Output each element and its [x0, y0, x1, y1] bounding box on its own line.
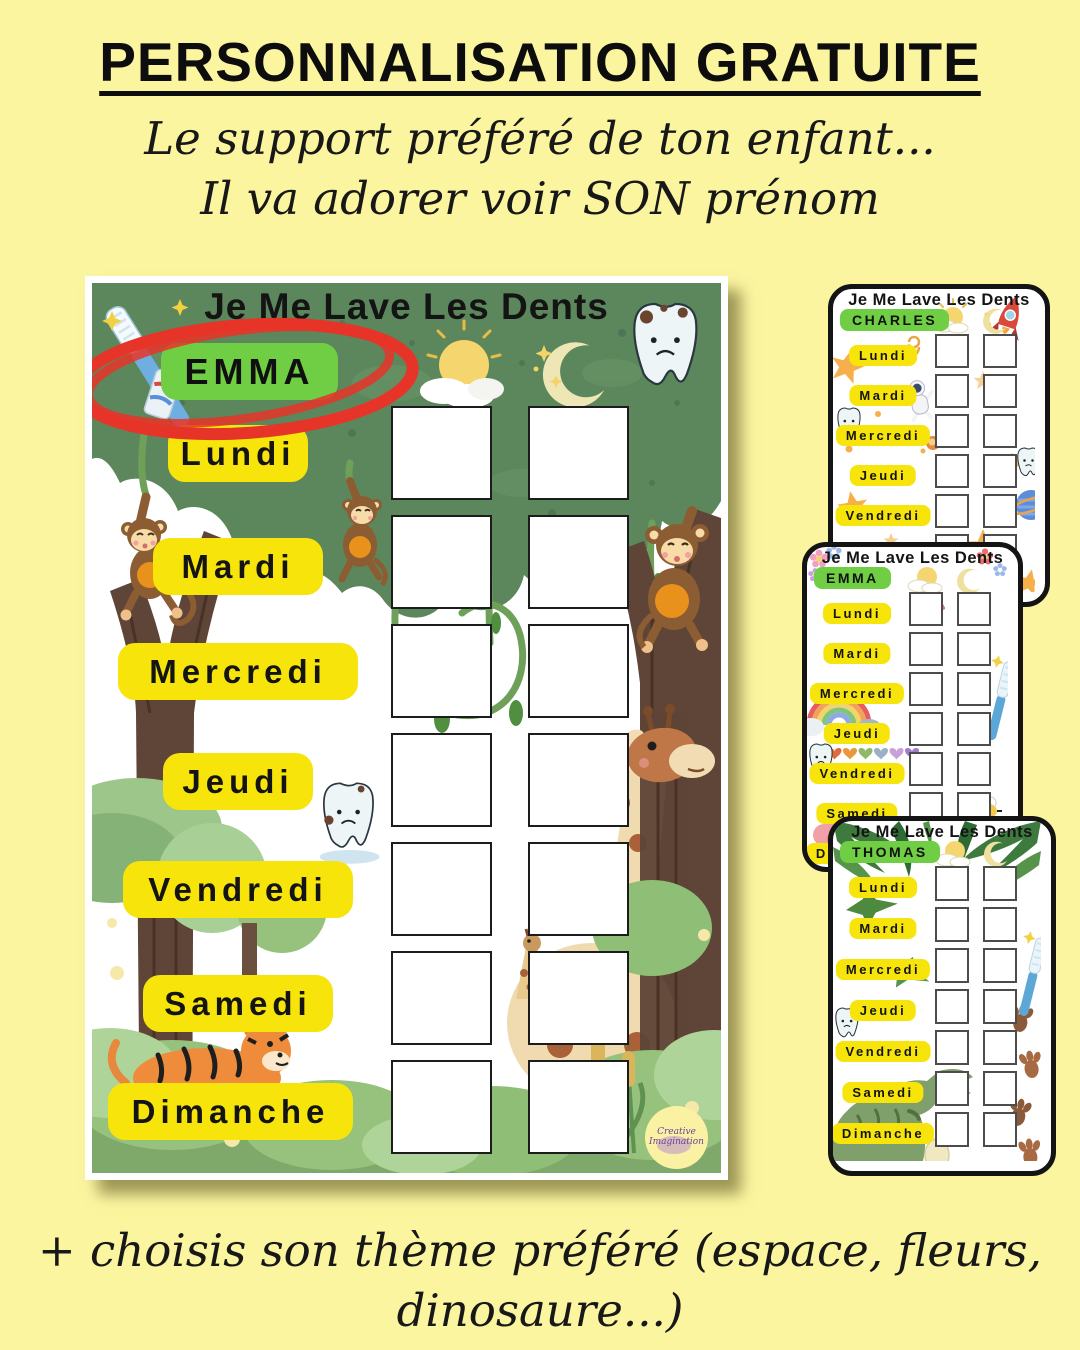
checkbox — [391, 515, 492, 609]
day-pill-vendredi: Vendredi — [836, 505, 931, 526]
day-pill-vendredi: Vendredi — [836, 1041, 931, 1062]
mini-chart-title: Je Me Lave Les Dents — [833, 823, 1051, 842]
brand-logo: Creative Imagination — [645, 1106, 708, 1169]
day-pill-dimanche: Dimanche — [108, 1083, 353, 1140]
checkbox — [957, 672, 991, 706]
checkbox — [983, 907, 1017, 942]
day-pill-dimanche: Dimanche — [832, 1123, 934, 1144]
checkbox — [983, 414, 1017, 448]
jungle-scene: Je Me Lave Les Dents EMMA Lundi Mardi Me… — [92, 283, 721, 1173]
checkbox — [935, 454, 969, 488]
checkbox — [909, 672, 943, 706]
checkbox — [391, 842, 492, 936]
checkbox — [983, 1071, 1017, 1106]
mini-chart-name-pill: THOMAS — [840, 841, 940, 863]
checkbox — [957, 752, 991, 786]
checkbox — [957, 632, 991, 666]
checkbox — [528, 406, 629, 500]
day-pill-mercredi: Mercredi — [118, 643, 358, 700]
day-pill-mardi: Mardi — [849, 385, 916, 406]
checkbox — [528, 624, 629, 718]
checkbox — [935, 989, 969, 1024]
checkbox — [935, 866, 969, 901]
checkbox — [935, 1030, 969, 1065]
checkbox — [391, 733, 492, 827]
checkbox — [935, 1112, 969, 1147]
checkbox — [983, 374, 1017, 408]
checkbox — [528, 733, 629, 827]
checkbox — [935, 1071, 969, 1106]
checkbox — [528, 1060, 629, 1154]
mini-tooth-right — [1018, 448, 1035, 476]
checkbox — [528, 951, 629, 1045]
mini-chart-name-pill: CHARLES — [840, 309, 949, 331]
checkbox — [935, 948, 969, 983]
day-pill-mercredi: Mercredi — [836, 959, 930, 980]
checkbox — [909, 712, 943, 746]
checkbox — [909, 592, 943, 626]
footer-line-1: + choisis son thème préféré (espace, fle… — [0, 1224, 1080, 1277]
day-pill-lundi: Lundi — [849, 345, 917, 366]
main-chart: Je Me Lave Les Dents EMMA Lundi Mardi Me… — [85, 276, 728, 1180]
mini-chart-title: Je Me Lave Les Dents — [807, 549, 1018, 568]
checkbox — [983, 989, 1017, 1024]
checkbox — [957, 592, 991, 626]
checkbox-grid — [391, 406, 629, 1154]
checkbox — [983, 454, 1017, 488]
checkbox — [391, 624, 492, 718]
day-pill-jeudi: Jeudi — [163, 753, 313, 810]
checkbox — [983, 866, 1017, 901]
checkbox — [391, 1060, 492, 1154]
day-pill-mercredi: Mercredi — [810, 683, 904, 704]
checkbox — [935, 414, 969, 448]
checkbox — [909, 632, 943, 666]
checkbox — [935, 494, 969, 528]
checkbox — [983, 494, 1017, 528]
day-pill-vendredi: Vendredi — [810, 763, 905, 784]
day-pill-jeudi: Jeudi — [850, 1000, 916, 1021]
checkbox — [528, 515, 629, 609]
checkbox — [957, 712, 991, 746]
checkbox — [528, 842, 629, 936]
red-highlight-circle — [92, 309, 429, 451]
poster: PERSONNALISATION GRATUITE Le support pré… — [0, 0, 1080, 1350]
checkbox — [983, 1030, 1017, 1065]
subtitle-line-1: Le support préféré de ton enfant... — [0, 112, 1080, 165]
mini-chart-title: Je Me Lave Les Dents — [833, 291, 1045, 310]
day-pill-lundi: Lundi — [823, 603, 891, 624]
day-pill-mardi: Mardi — [153, 538, 323, 595]
subtitle-line-2: Il va adorer voir SON prénom — [0, 172, 1080, 225]
checkbox — [391, 951, 492, 1045]
day-pill-jeudi: Jeudi — [824, 723, 890, 744]
footer-line-2: dinosaure...) — [0, 1284, 1080, 1337]
checkbox-grid — [935, 866, 1017, 1147]
checkbox — [983, 948, 1017, 983]
day-pill-samedi: Samedi — [143, 975, 333, 1032]
checkbox — [983, 1112, 1017, 1147]
day-pill-mercredi: Mercredi — [836, 425, 930, 446]
day-pill-mardi: Mardi — [823, 643, 890, 664]
day-pill-jeudi: Jeudi — [850, 465, 916, 486]
sad-tooth-jeudi — [320, 783, 380, 864]
day-pill-vendredi: Vendredi — [123, 861, 353, 918]
page-title: PERSONNALISATION GRATUITE — [0, 30, 1080, 94]
checkbox — [935, 334, 969, 368]
day-pill-mardi: Mardi — [849, 918, 916, 939]
checkbox — [909, 752, 943, 786]
checkbox — [983, 334, 1017, 368]
checkbox — [935, 374, 969, 408]
day-pill-samedi: Samedi — [842, 1082, 923, 1103]
mini-chart-thomas: Je Me Lave Les Dents THOMAS Lundi Mardi … — [828, 816, 1056, 1176]
sun-icon — [908, 567, 942, 593]
mini-chart-name-pill: EMMA — [814, 567, 891, 589]
day-pill-lundi: Lundi — [849, 877, 917, 898]
checkbox — [935, 907, 969, 942]
